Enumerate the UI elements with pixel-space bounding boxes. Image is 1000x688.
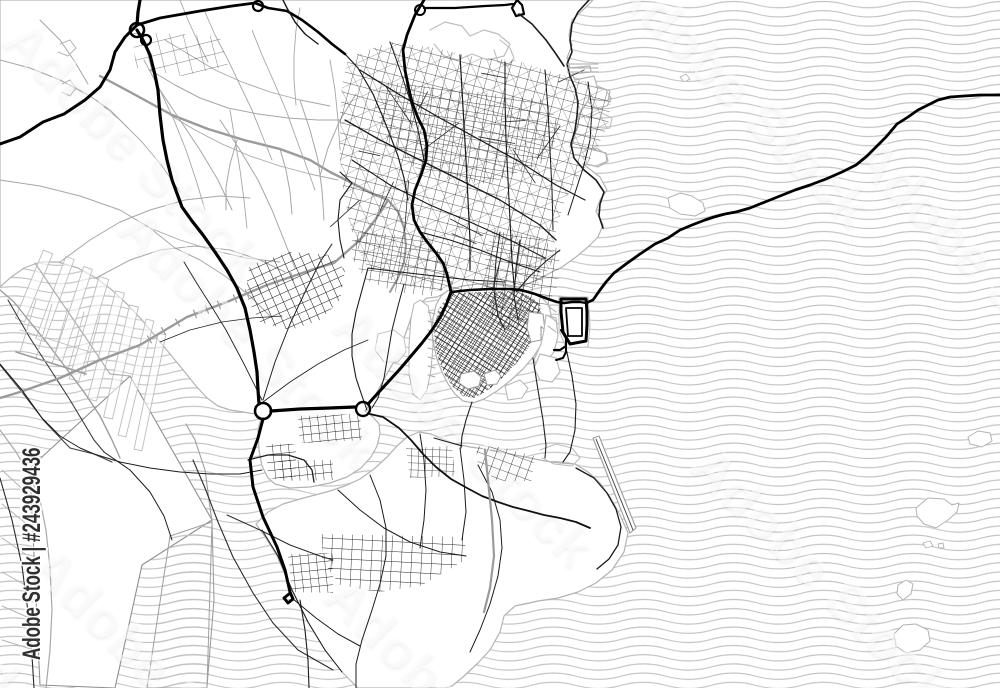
svg-text:Adobe Stock | #243929436: Adobe Stock | #243929436 [18, 447, 46, 660]
